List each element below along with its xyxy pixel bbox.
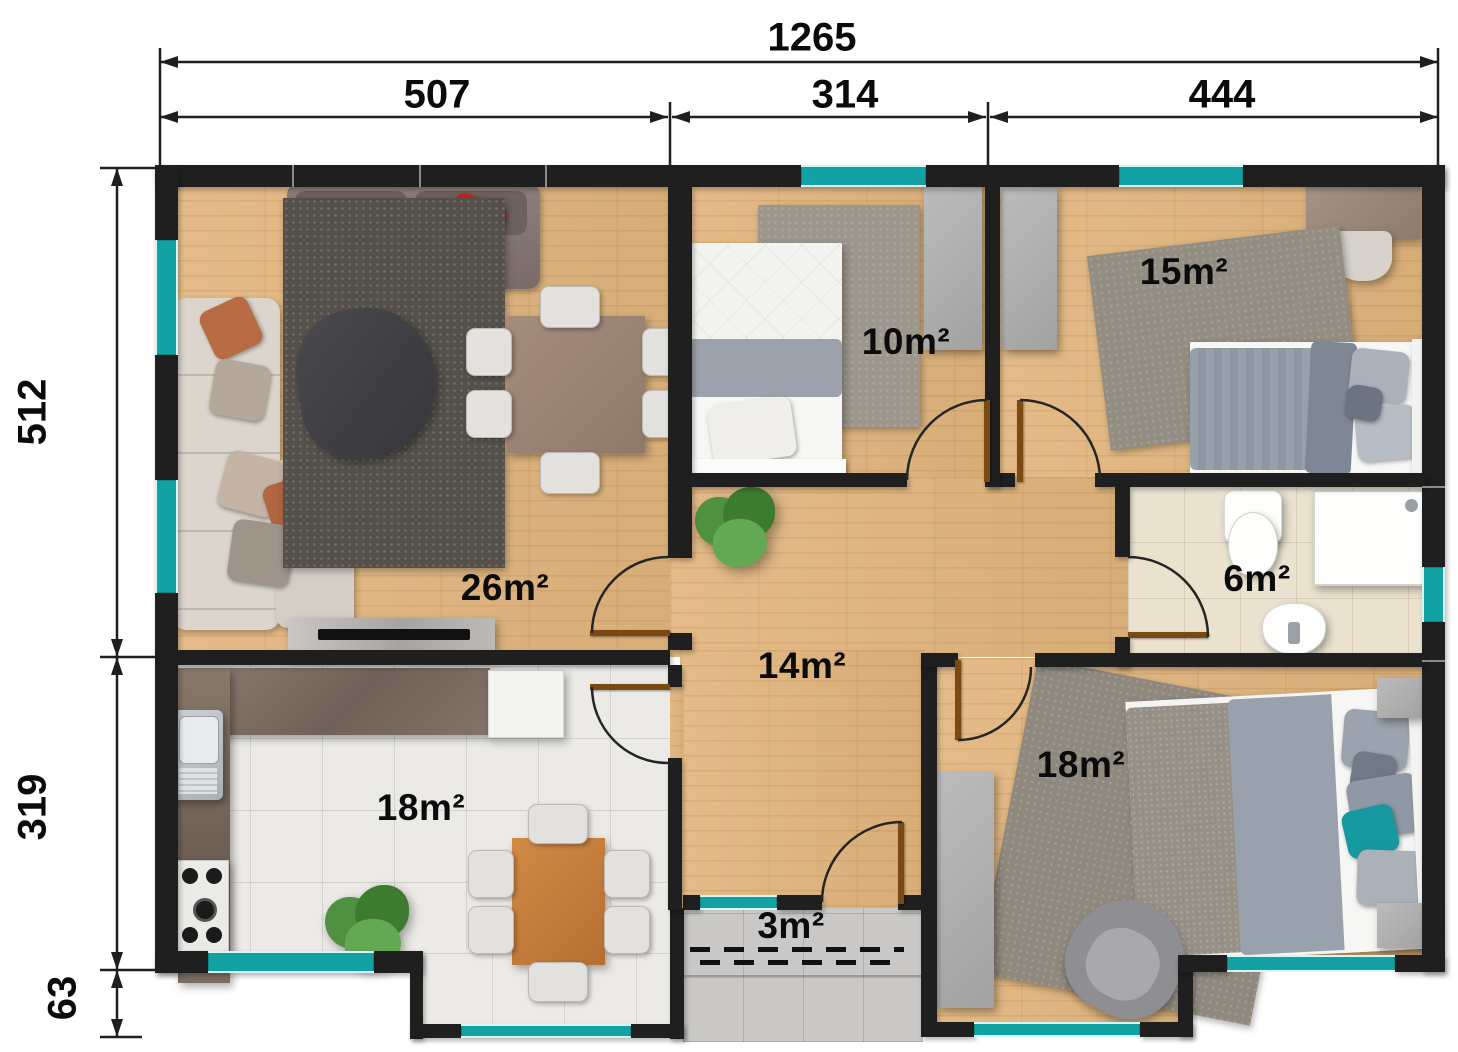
faucet	[1288, 622, 1300, 644]
floor-plan: 1265 507 314 444 512 319 63 26m² 10m² 15…	[0, 0, 1458, 1052]
entrance-step-marks	[700, 960, 904, 965]
door-leaf-kitchen	[590, 684, 670, 690]
burner	[206, 927, 222, 943]
window-living-1	[155, 240, 178, 355]
window-kitchen	[208, 951, 374, 973]
wall-joint	[292, 165, 294, 187]
wall-alcove-bottom-a	[921, 1022, 974, 1037]
window-alcove	[974, 1022, 1140, 1037]
door-leaf-bedroom-mid	[1017, 400, 1023, 482]
bed-quilt	[688, 243, 842, 353]
dim-label-seg-319: 319	[11, 774, 56, 841]
wall-bathroom-left-a	[1115, 487, 1130, 557]
kitchen-chair	[528, 804, 588, 844]
dim-arrow	[990, 111, 1008, 123]
armchair-cushion	[1074, 916, 1170, 1012]
hallway-floor-lower	[680, 650, 925, 912]
wall-joint	[1422, 660, 1445, 662]
wall-entrance-left	[670, 908, 684, 1039]
dim-arrow	[111, 1019, 123, 1037]
wall-spine-d	[668, 758, 682, 910]
wall-top	[155, 165, 1445, 187]
kitchen-table	[512, 838, 605, 965]
window-bedroom-small	[801, 165, 926, 187]
dim-label-seg-444: 444	[1189, 73, 1256, 118]
burner-center	[193, 898, 217, 922]
dining-chair	[540, 452, 600, 494]
dim-arrow	[111, 970, 123, 988]
burner	[182, 927, 198, 943]
dim-arrow	[968, 111, 986, 123]
dim-arrow	[1420, 56, 1438, 68]
wall-entrance-top-a	[683, 895, 700, 910]
bedroom-mid-wardrobe	[1002, 187, 1057, 350]
door-leaf-entrance	[898, 822, 904, 904]
dim-label-seg-512: 512	[11, 379, 56, 446]
shower-tray	[1313, 490, 1427, 586]
bed-pillow	[706, 395, 798, 466]
wall-bedroom-large-bottom-a	[1178, 955, 1228, 972]
sink-drainboard	[179, 768, 217, 794]
entrance-tile-edge	[683, 975, 923, 977]
wall-joint	[419, 165, 421, 187]
dim-arrow	[111, 168, 123, 186]
tv	[318, 629, 470, 640]
dim-label-seg-63: 63	[41, 976, 86, 1021]
bed-blanket	[688, 339, 842, 397]
hallway-plant	[695, 487, 777, 569]
dining-chair	[540, 286, 600, 328]
dim-label-seg-314: 314	[812, 73, 879, 118]
wall-bedrooms-bottom-c	[1095, 473, 1425, 487]
dim-arrow	[672, 111, 690, 123]
room-label-bedroom-mid: 15m²	[1140, 251, 1228, 293]
bedroom-small-bed	[688, 243, 842, 475]
dim-arrow	[650, 111, 668, 123]
room-label-bedroom-small: 10m²	[862, 321, 950, 363]
dim-label-total-width: 1265	[768, 16, 857, 61]
dim-arrow	[111, 657, 123, 675]
room-label-kitchen: 18m²	[377, 787, 465, 829]
kitchen-chair	[468, 850, 514, 898]
kitchen-chair	[468, 906, 514, 954]
fridge	[488, 670, 564, 738]
kitchen-chair	[528, 962, 588, 1002]
wall-bedrooms-bottom-a	[690, 473, 907, 487]
room-label-entrance: 3m²	[757, 905, 824, 947]
door-leaf-bedroom-small	[984, 400, 990, 482]
wall-joint	[1422, 486, 1445, 488]
wall-bedroom-large-left	[921, 653, 937, 1024]
window-bedroom-large	[1227, 955, 1395, 972]
door-leaf-bathroom	[1128, 632, 1208, 638]
kitchen-chair	[604, 850, 650, 898]
wall-bedroom-large-bottom-b	[1395, 955, 1445, 972]
burner	[182, 868, 198, 884]
dim-arrow	[111, 952, 123, 970]
dining-table-living	[507, 316, 645, 453]
wall-spine-a	[668, 187, 692, 558]
dim-arrow	[111, 639, 123, 657]
nightstand	[1377, 678, 1424, 718]
window-bedroom-mid	[1119, 165, 1243, 187]
kitchen-sink	[173, 710, 223, 800]
dim-label-seg-507: 507	[404, 73, 471, 118]
room-label-hallway: 14m²	[758, 645, 846, 687]
dim-arrow	[160, 111, 178, 123]
wall-spine-b	[668, 633, 692, 650]
kitchen-chair	[604, 906, 650, 954]
stove	[175, 860, 229, 954]
door-leaf-bedroom-large	[955, 660, 961, 740]
room-label-bedroom-large: 18m²	[1037, 744, 1125, 786]
bedroom-large-wardrobe	[937, 772, 994, 1008]
dim-arrow	[1420, 111, 1438, 123]
sofa-pillow-taupe	[208, 358, 273, 423]
window-nook	[461, 1024, 631, 1038]
room-label-living: 26m²	[461, 567, 549, 609]
wall-spine-c	[668, 665, 682, 687]
door-leaf-living	[590, 630, 670, 636]
dining-chair	[466, 328, 512, 376]
window-living-2	[155, 480, 178, 593]
bed-pillow-small	[1343, 383, 1384, 423]
wall-joint	[545, 165, 547, 187]
entrance-step-marks	[690, 947, 904, 952]
bidet-sink	[1262, 603, 1326, 655]
sink-bowl	[179, 716, 219, 764]
dim-arrow	[160, 56, 178, 68]
window-bathroom	[1422, 567, 1445, 622]
bedroom-mid-bed	[1190, 342, 1430, 476]
burner	[206, 868, 222, 884]
wall-bedroom-large-top-b	[1035, 653, 1425, 667]
wall-living-kitchen	[178, 650, 670, 665]
room-label-bathroom: 6m²	[1223, 558, 1290, 600]
wall-bedroom-large-top-a	[921, 653, 958, 667]
dining-chair	[466, 390, 512, 438]
nightstand	[1377, 903, 1424, 948]
shower-drain	[1405, 499, 1418, 512]
